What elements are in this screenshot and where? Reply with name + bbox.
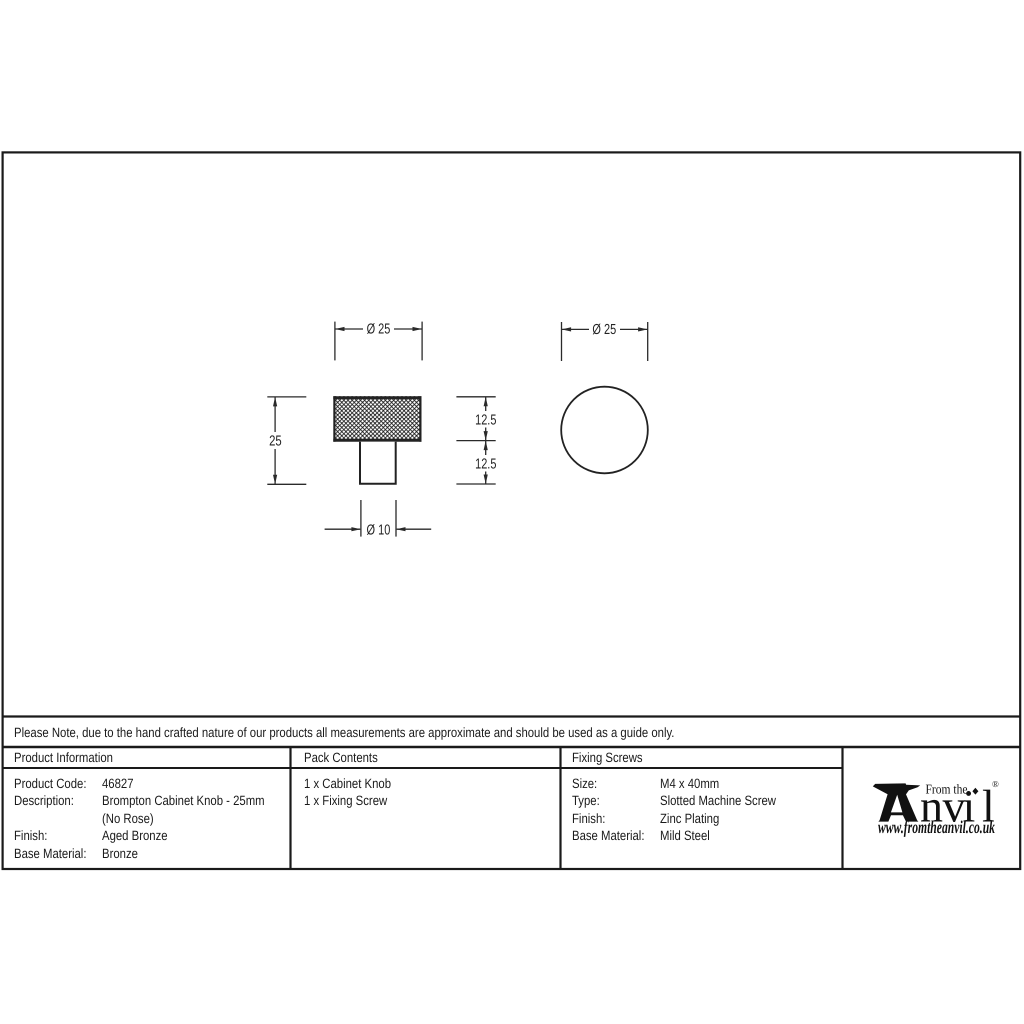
svg-text:12.5: 12.5	[475, 456, 496, 472]
svg-text:Ø 10: Ø 10	[367, 522, 391, 538]
svg-text:®: ®	[992, 779, 999, 789]
svg-text:Ø 25: Ø 25	[592, 322, 616, 338]
svg-text:From the: From the	[926, 782, 968, 797]
svg-text:25: 25	[269, 434, 282, 450]
svg-text:www.fromtheanvil.co.uk: www.fromtheanvil.co.uk	[878, 817, 995, 837]
svg-text:Ø 25: Ø 25	[367, 322, 391, 338]
svg-text:12.5: 12.5	[475, 412, 496, 428]
